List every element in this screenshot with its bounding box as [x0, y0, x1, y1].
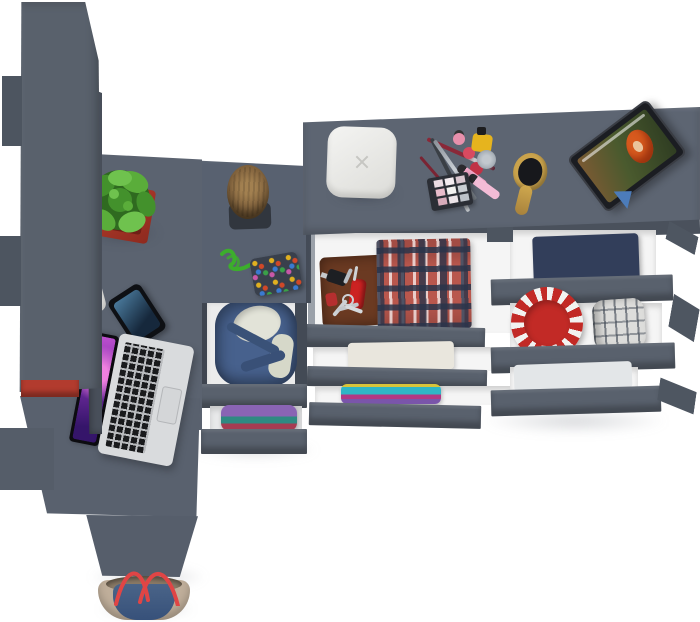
wardrobe-wing: [2, 76, 22, 146]
folded-clothes-stack: [221, 405, 297, 431]
drawer-front: [309, 402, 481, 429]
wardrobe-red-accent-box: [21, 380, 79, 397]
red-key-fob: [325, 292, 338, 307]
red-disc-center: [524, 300, 570, 346]
folded-plaid-shirt: [376, 238, 472, 330]
scene-teen-room-furniture-top-view: [0, 0, 700, 622]
yellow-bottle-cap: [477, 127, 486, 135]
desk-leg-block: [0, 428, 54, 490]
bag-straps: [98, 560, 190, 606]
key-ring: [342, 294, 354, 306]
hairbrush-handle: [514, 184, 534, 216]
stool-wood-grain: [229, 167, 267, 217]
silver-jar: [477, 150, 496, 169]
tote-bag: [98, 560, 190, 622]
dresser-side-wedge: [666, 294, 700, 342]
drawer-front: [201, 429, 307, 454]
drawer-front: [491, 386, 662, 417]
wardrobe-body: [18, 2, 102, 392]
folded-bright-tshirts: [341, 384, 441, 404]
nail-polish-pink: [453, 133, 465, 145]
wardrobe-wing: [0, 236, 21, 306]
